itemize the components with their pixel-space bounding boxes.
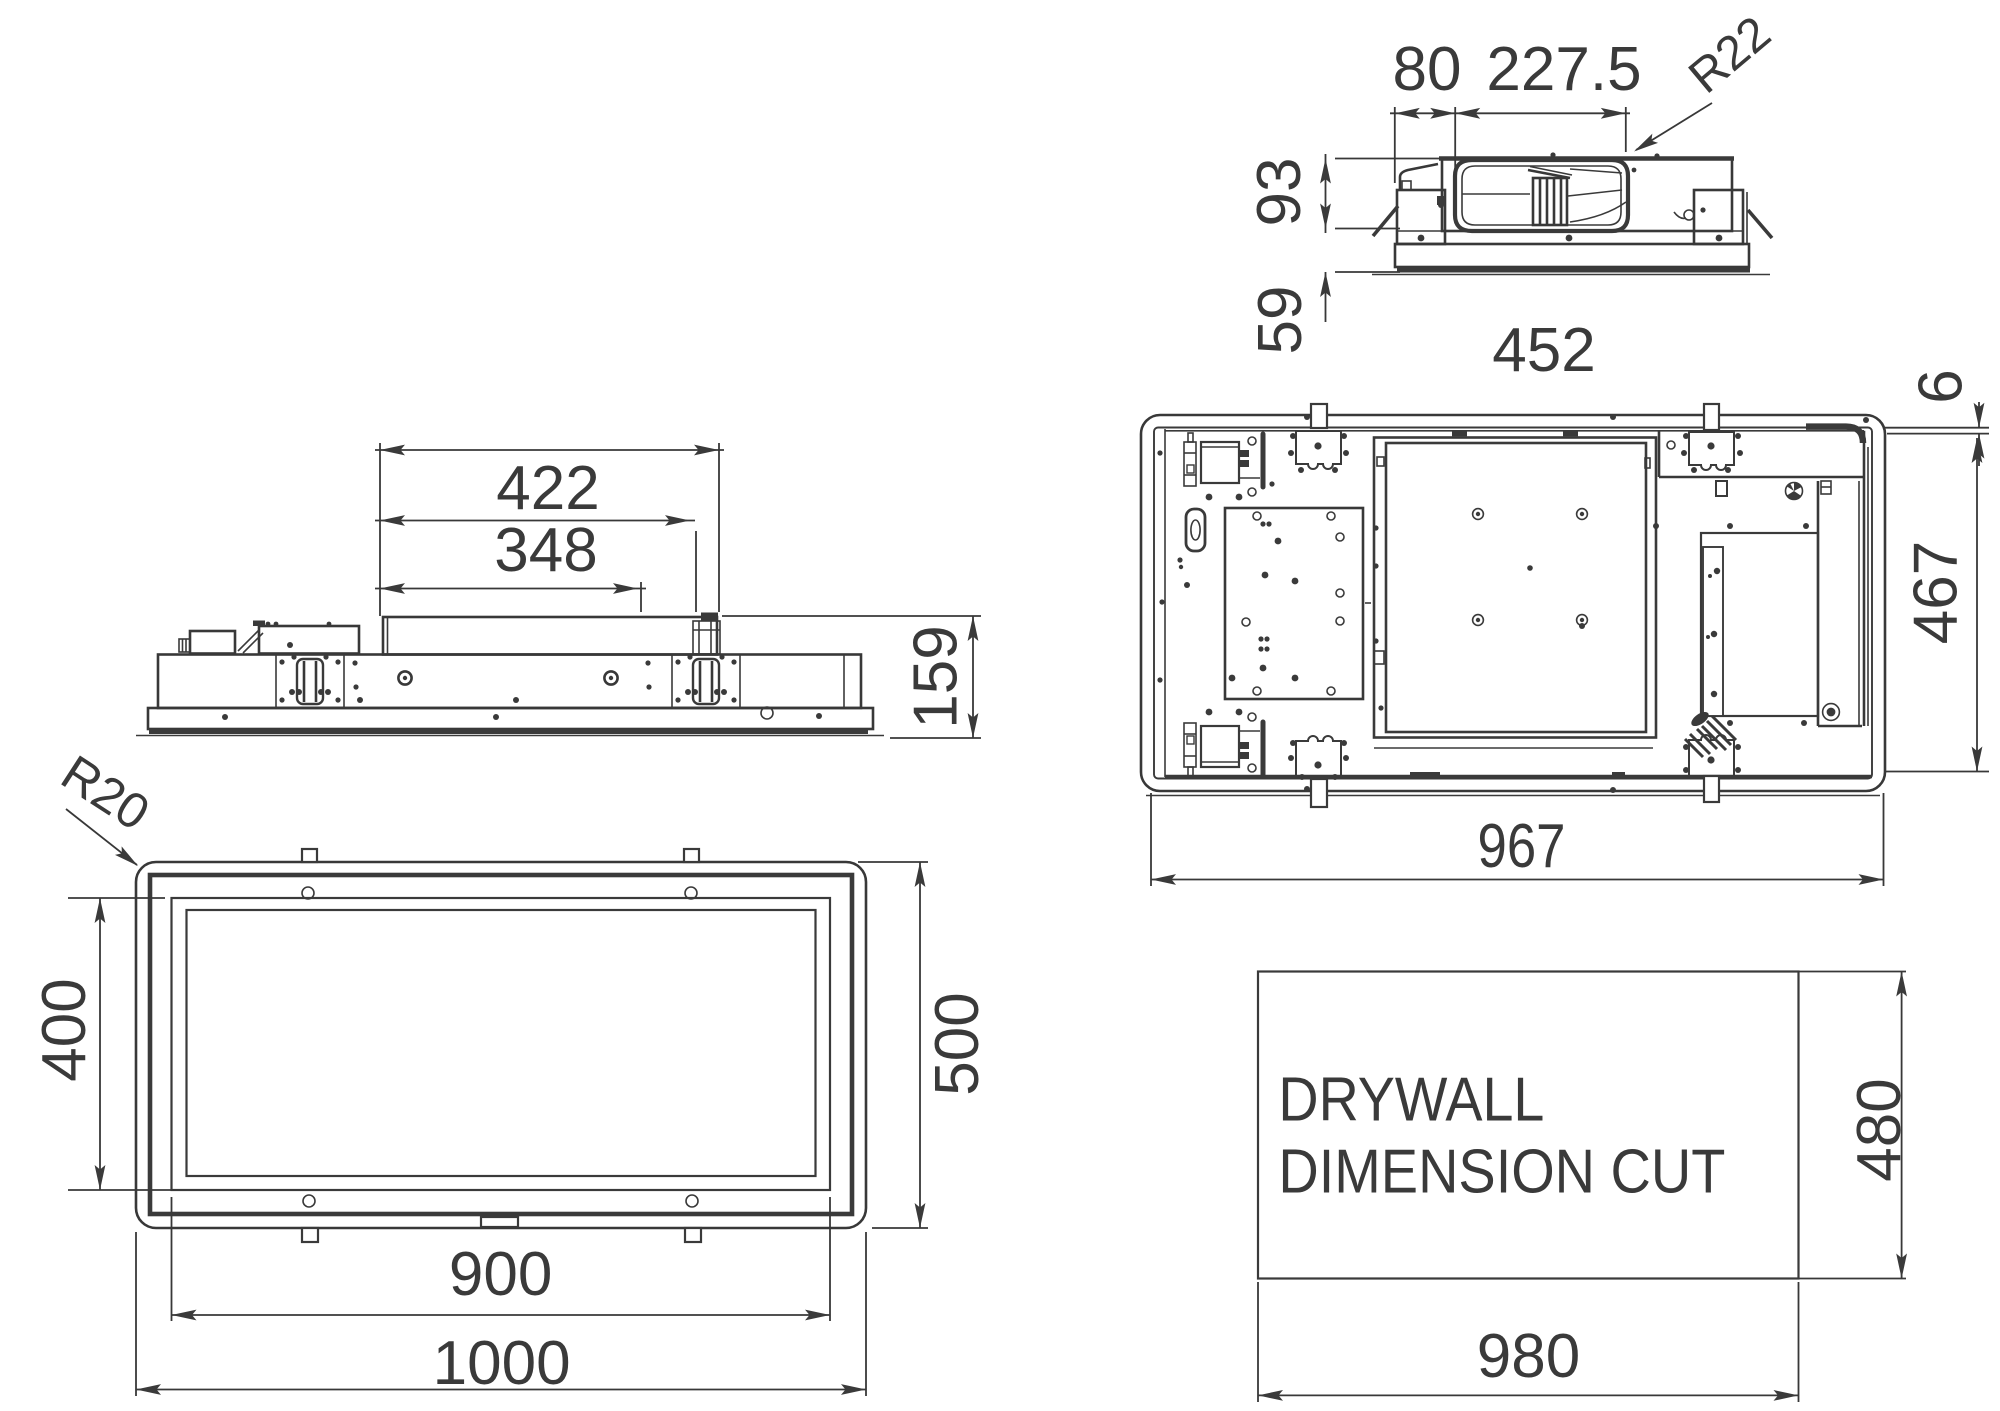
svg-text:80: 80 xyxy=(1393,35,1462,104)
svg-text:967: 967 xyxy=(1478,812,1566,881)
svg-text:452: 452 xyxy=(1492,316,1595,385)
svg-text:159: 159 xyxy=(902,625,971,728)
svg-text:6: 6 xyxy=(1907,369,1976,403)
svg-text:400: 400 xyxy=(30,978,99,1081)
svg-text:93: 93 xyxy=(1245,158,1314,227)
svg-text:227.5: 227.5 xyxy=(1486,35,1641,104)
svg-text:467: 467 xyxy=(1902,541,1971,644)
svg-text:DRYWALL: DRYWALL xyxy=(1278,1066,1544,1135)
svg-text:59: 59 xyxy=(1246,286,1315,355)
svg-text:500: 500 xyxy=(923,992,992,1095)
svg-text:348: 348 xyxy=(494,516,597,585)
svg-text:900: 900 xyxy=(449,1240,552,1309)
svg-text:422: 422 xyxy=(496,454,599,523)
svg-text:R20: R20 xyxy=(52,744,159,841)
svg-text:980: 980 xyxy=(1477,1322,1580,1391)
svg-text:1000: 1000 xyxy=(433,1329,571,1398)
svg-text:DIMENSION CUT: DIMENSION CUT xyxy=(1278,1137,1725,1206)
svg-text:480: 480 xyxy=(1845,1078,1914,1181)
svg-text:R22: R22 xyxy=(1679,7,1781,104)
